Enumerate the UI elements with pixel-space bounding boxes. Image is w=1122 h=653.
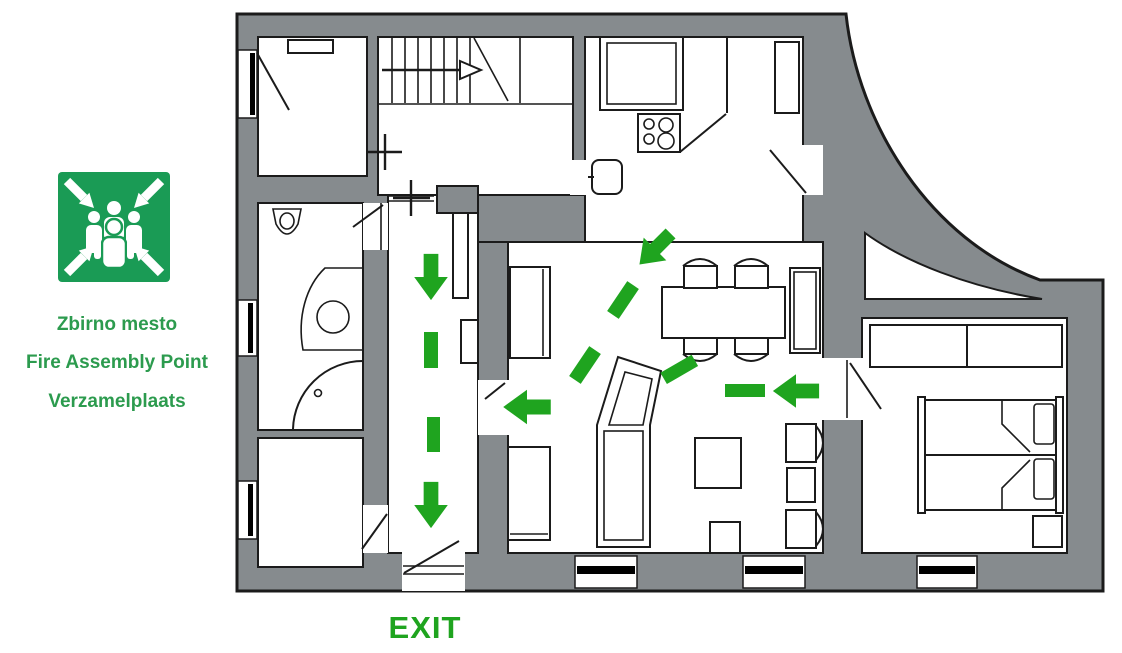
stove-icon [638, 114, 680, 152]
wall-block [478, 195, 585, 242]
living-window-2 [743, 556, 805, 588]
left-sofa [510, 267, 550, 358]
evacuation-plan-page: Zbirno mesto Fire Assembly Point Verzame… [0, 0, 1122, 653]
hall-kitchen-opening [570, 160, 588, 195]
living-window-1 [575, 556, 637, 588]
left-sofa-2 [508, 447, 550, 540]
sign-line-english: Fire Assembly Point [8, 352, 226, 374]
route-dash [427, 417, 440, 452]
bedroom-window [917, 556, 977, 588]
fire-assembly-point-icon [58, 172, 170, 282]
storage-room [258, 438, 363, 567]
exit-label: EXIT [360, 610, 490, 646]
coffee-table [695, 438, 741, 488]
entrance-shelf [288, 40, 333, 53]
bathroom [258, 203, 363, 430]
sign-line-slovenian: Zbirno mesto [8, 314, 226, 336]
storage-window [238, 481, 257, 539]
stair-hall [378, 37, 573, 195]
side-table [710, 522, 740, 553]
route-dash [424, 332, 438, 368]
storage-door [362, 505, 388, 553]
double-bed [918, 397, 1063, 513]
wall-stub [437, 186, 478, 213]
tall-cabinet [790, 268, 820, 353]
kitchen-counter [600, 37, 683, 110]
wardrobe [870, 325, 1062, 367]
entrance-room [258, 37, 367, 176]
bathroom-window [238, 300, 257, 356]
sign-line-dutch: Verzamelplaats [8, 391, 226, 413]
route-dash [725, 384, 765, 397]
dining-table [662, 287, 785, 338]
nightstand [1033, 516, 1062, 547]
kitchen-cabinet [775, 42, 799, 113]
